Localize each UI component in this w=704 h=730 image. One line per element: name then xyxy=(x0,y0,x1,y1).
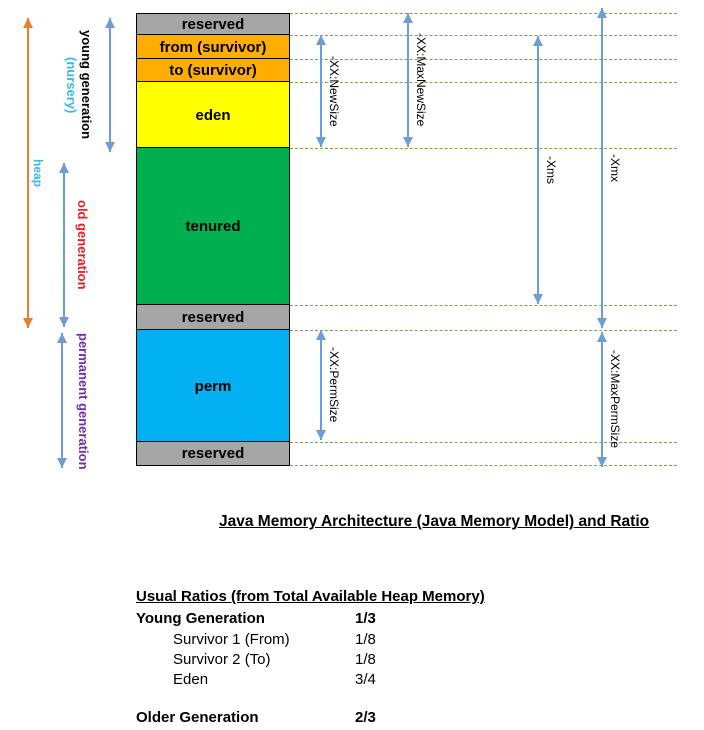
old-generation-range-arrow xyxy=(63,163,65,327)
ratio-label: Survivor 2 (To) xyxy=(136,651,271,668)
ratio-value: 1/8 xyxy=(355,651,376,668)
permsize-range-arrow xyxy=(320,330,322,440)
nursery-text: (nursery) xyxy=(64,18,79,152)
ratio-label: Older Generation xyxy=(136,709,259,726)
boundary-guide-line xyxy=(290,330,677,331)
permsize-flag-label: -XX:PermSize xyxy=(327,330,341,440)
ratio-row-eden: Eden 3/4 xyxy=(136,671,436,691)
newsize-range-arrow xyxy=(320,35,322,147)
ratio-label: Survivor 1 (From) xyxy=(136,631,290,648)
memory-block-reserved-top: reserved xyxy=(136,13,290,36)
xmx-flag-label: -Xmx xyxy=(608,8,622,328)
xmx-range-arrow xyxy=(601,8,603,328)
maxpermsize-flag-label: -XX:MaxPermSize xyxy=(608,332,622,467)
maxnewsize-range-arrow xyxy=(407,13,409,147)
permanent-generation-range-arrow xyxy=(61,333,63,468)
memory-block-eden: eden xyxy=(136,81,290,149)
ratio-value: 1/3 xyxy=(355,610,376,627)
young-generation-text: young generation xyxy=(79,18,94,152)
memory-block-to-survivor: to (survivor) xyxy=(136,58,290,83)
ratio-value: 3/4 xyxy=(355,671,376,688)
memory-block-tenured: tenured xyxy=(136,147,290,306)
ratio-value: 1/8 xyxy=(355,631,376,648)
xms-flag-label: -Xms xyxy=(544,36,558,304)
memory-block-from-survivor: from (survivor) xyxy=(136,34,290,60)
ratio-row-older-generation: Older Generation 2/3 xyxy=(136,709,436,729)
heap-label: heap xyxy=(31,18,45,328)
heap-range-arrow xyxy=(27,18,29,328)
ratio-row-young-generation: Young Generation 1/3 xyxy=(136,610,436,630)
ratio-label: Eden xyxy=(136,671,208,688)
young-generation-range-arrow xyxy=(109,18,111,152)
ratio-label: Young Generation xyxy=(136,610,265,627)
xms-range-arrow xyxy=(537,36,539,304)
old-generation-label: old generation xyxy=(75,163,90,327)
maxnewsize-flag-label: -XX:MaxNewSize xyxy=(414,13,428,147)
ratio-row-survivor-1: Survivor 1 (From) 1/8 xyxy=(136,631,436,651)
ratios-heading: Usual Ratios (from Total Available Heap … xyxy=(136,588,485,605)
ratio-row-survivor-2: Survivor 2 (To) 1/8 xyxy=(136,651,436,671)
memory-block-perm: perm xyxy=(136,329,290,443)
memory-block-reserved-bottom: reserved xyxy=(136,441,290,466)
young-generation-label: young generation (nursery) xyxy=(64,18,94,152)
java-memory-diagram: reserved from (survivor) to (survivor) e… xyxy=(0,0,704,730)
diagram-title: Java Memory Architecture (Java Memory Mo… xyxy=(219,513,649,531)
ratio-value: 2/3 xyxy=(355,709,376,726)
newsize-flag-label: -XX:NewSize xyxy=(327,35,341,147)
maxpermsize-range-arrow xyxy=(601,332,603,467)
memory-block-reserved-middle: reserved xyxy=(136,304,290,331)
permanent-generation-label: permanent generation xyxy=(76,333,91,468)
